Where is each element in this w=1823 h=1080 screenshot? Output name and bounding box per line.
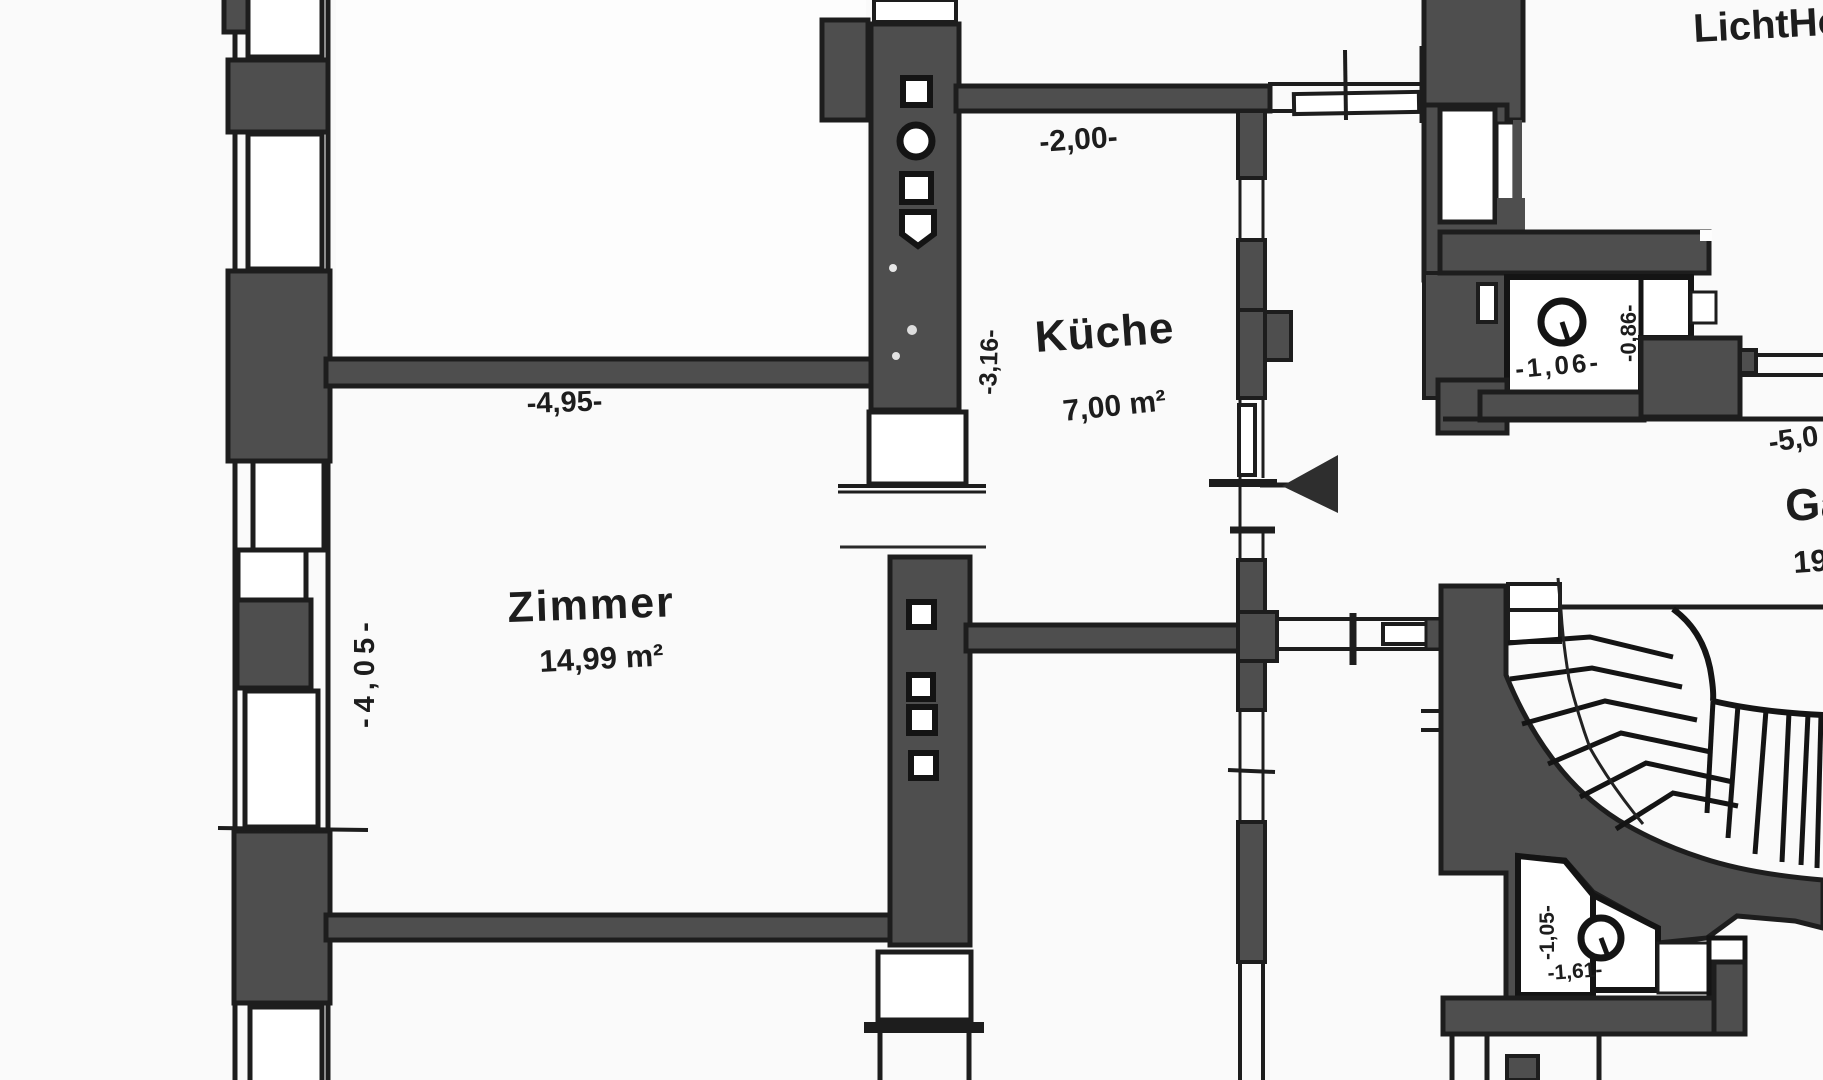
- svg-text:-3,16-: -3,16-: [974, 329, 1004, 395]
- svg-text:-0,86-: -0,86-: [1616, 305, 1641, 362]
- svg-text:-2,00-: -2,00-: [1038, 121, 1118, 159]
- svg-text:14,99 m²: 14,99 m²: [539, 638, 665, 679]
- svg-text:-4,95-: -4,95-: [526, 385, 603, 420]
- svg-text:Zimmer: Zimmer: [507, 578, 676, 632]
- svg-text:19,0: 19,0: [1792, 541, 1823, 580]
- svg-text:Gang: Gang: [1784, 474, 1823, 531]
- svg-text:Küche: Küche: [1033, 303, 1176, 362]
- svg-text:-1,61-: -1,61-: [1547, 958, 1603, 985]
- svg-text:-1,05-: -1,05-: [1536, 905, 1559, 960]
- svg-text:LichtHo: LichtHo: [1692, 0, 1823, 51]
- svg-text:-4,05-: -4,05-: [349, 616, 381, 728]
